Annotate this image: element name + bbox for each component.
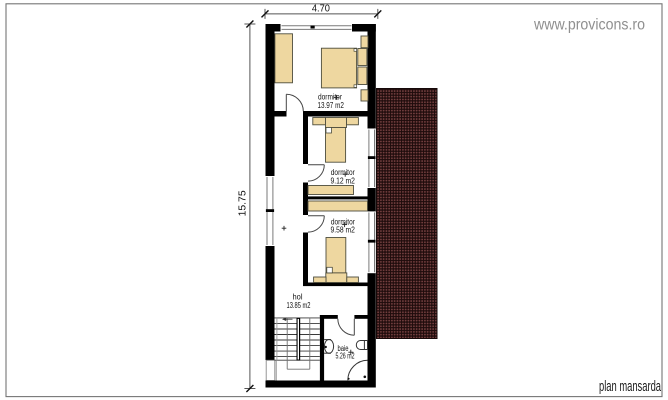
svg-text:4.70: 4.70 <box>312 4 330 15</box>
svg-text:5.26 m2: 5.26 m2 <box>336 351 355 360</box>
svg-text:www.provicons.ro: www.provicons.ro <box>533 17 645 34</box>
svg-text:15.75: 15.75 <box>237 190 248 216</box>
svg-text:9.12 m2: 9.12 m2 <box>330 176 355 185</box>
svg-text:13.97 m2: 13.97 m2 <box>317 101 344 110</box>
svg-text:13.85 m2: 13.85 m2 <box>287 301 311 310</box>
svg-text:plan mansarda: plan mansarda <box>599 378 661 395</box>
svg-text:9.58 m2: 9.58 m2 <box>330 225 355 234</box>
